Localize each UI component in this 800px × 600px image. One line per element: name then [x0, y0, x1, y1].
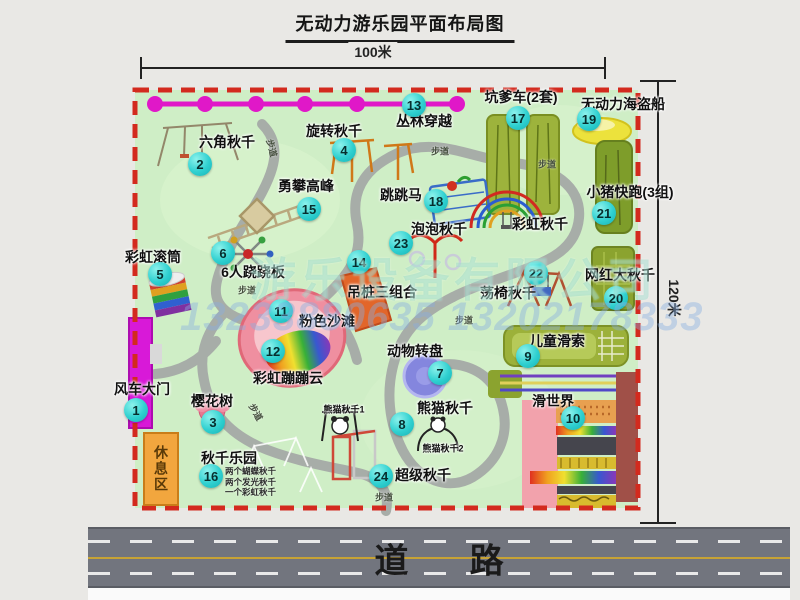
label-seesaw: 6人跷跷板	[221, 262, 285, 282]
rest-area: 休息区	[143, 432, 179, 506]
badge-16: 16	[199, 464, 223, 488]
walkway-label: 步道	[455, 314, 473, 327]
walkway-label: 步道	[431, 145, 449, 158]
badge-5: 5	[148, 262, 172, 286]
label-animal-turntable: 动物转盘	[387, 341, 443, 361]
badge-15: 15	[297, 197, 321, 221]
badge-10: 10	[561, 406, 585, 430]
label-hanging-pile: 吊桩三组合	[347, 282, 417, 302]
badge-9: 9	[516, 344, 540, 368]
badge-13: 13	[402, 93, 426, 117]
label-jumping-horse: 跳跳马	[380, 185, 422, 205]
badge-18: 18	[424, 189, 448, 213]
label-rainbow-swing: 彩虹秋千	[512, 214, 568, 234]
label-swing-chair: 荡椅秋千	[480, 283, 536, 303]
badge-4: 4	[332, 138, 356, 162]
label-hexagon-swing: 六角秋千	[199, 132, 255, 152]
badge-3: 3	[201, 410, 225, 434]
label-panda-swing: 熊猫秋千	[417, 398, 473, 418]
label-piggy-run: 小猪快跑(3组)	[586, 182, 673, 202]
walkway-label: 步道	[238, 284, 256, 297]
label-rotating-swing: 旋转秋千	[306, 121, 362, 141]
badge-17: 17	[506, 106, 530, 130]
badge-24: 24	[369, 464, 393, 488]
label-rainbow-cloud: 彩虹蹦蹦云	[253, 368, 323, 388]
badge-6: 6	[211, 241, 235, 265]
label-pit-car: 坑爹车(2套)	[484, 87, 557, 107]
label-super-swing: 超级秋千	[395, 465, 451, 485]
label-climbing-peak: 勇攀高峰	[278, 176, 334, 196]
label-jungle-crossing: 丛林穿越	[396, 111, 452, 131]
label-panda-swing-1: 熊猫秋千1	[323, 403, 364, 416]
badge-1: 1	[124, 398, 148, 422]
badge-19: 19	[577, 107, 601, 131]
note-line: 一个彩虹秋千	[225, 487, 276, 498]
badge-2: 2	[188, 152, 212, 176]
badge-11: 11	[269, 299, 293, 323]
badge-22: 22	[524, 261, 548, 285]
badge-14: 14	[347, 250, 371, 274]
badge-12: 12	[261, 339, 285, 363]
badge-8: 8	[390, 412, 414, 436]
walkway-label: 步道	[538, 158, 556, 171]
label-cherry-tree: 樱花树	[191, 391, 233, 411]
label-pink-beach: 粉色沙滩	[299, 311, 355, 331]
badge-23: 23	[389, 231, 413, 255]
badge-7: 7	[428, 361, 452, 385]
label-big-swing: 网红大秋千	[585, 265, 655, 285]
label-windmill-gate: 风车大门	[114, 379, 170, 399]
swing-park-notes: 两个蝴蝶秋千 两个发光秋千 一个彩虹秋千	[225, 466, 276, 498]
note-line: 两个发光秋千	[225, 477, 276, 488]
badge-20: 20	[604, 286, 628, 310]
note-line: 两个蝴蝶秋千	[225, 466, 276, 477]
badge-21: 21	[592, 201, 616, 225]
label-panda-swing-2: 熊猫秋千2	[422, 442, 463, 455]
walkway-label: 步道	[375, 491, 393, 504]
page: { "title": "无动力游乐园平面布局图", "dimensions": …	[0, 0, 800, 600]
label-bubble-swing: 泡泡秋千	[411, 219, 467, 239]
